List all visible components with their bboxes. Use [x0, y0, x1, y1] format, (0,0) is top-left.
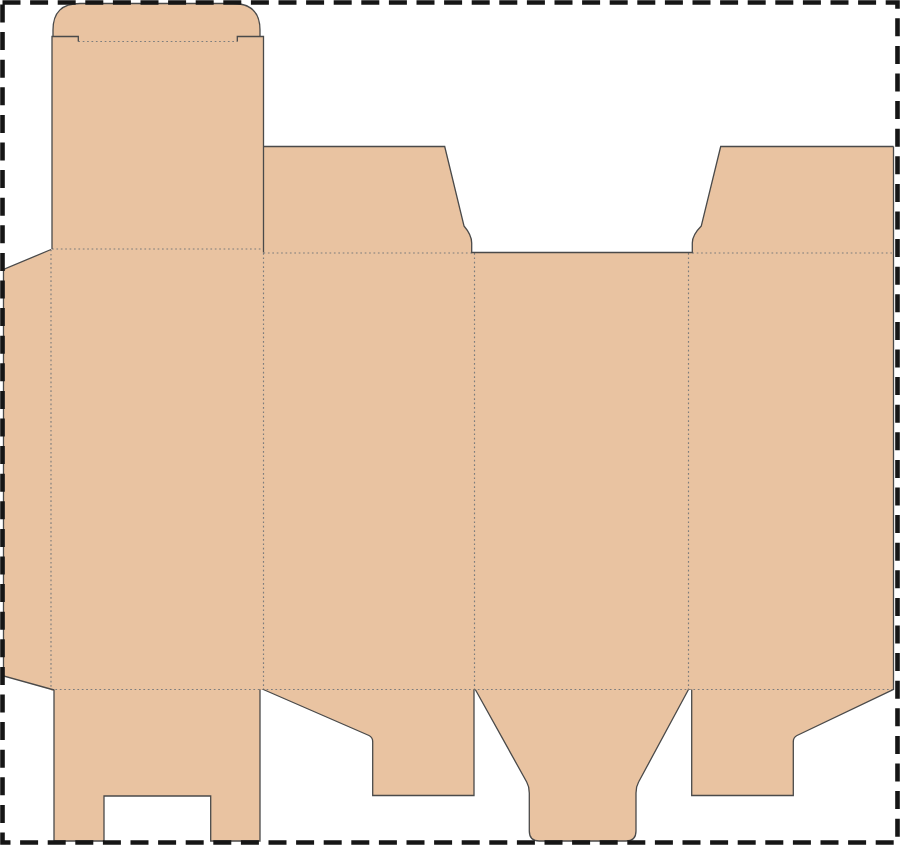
- top-flap-2-fill: [264, 147, 472, 254]
- lid-panel-fill: [52, 37, 264, 254]
- dieline-svg: [0, 0, 900, 845]
- tuck-flap-fill: [53, 4, 260, 39]
- body-panels-fill: [51, 250, 894, 691]
- top-flap-4-fill: [692, 147, 893, 254]
- glue-flap-fill: [4, 250, 55, 691]
- dieline-viewport: [0, 0, 900, 845]
